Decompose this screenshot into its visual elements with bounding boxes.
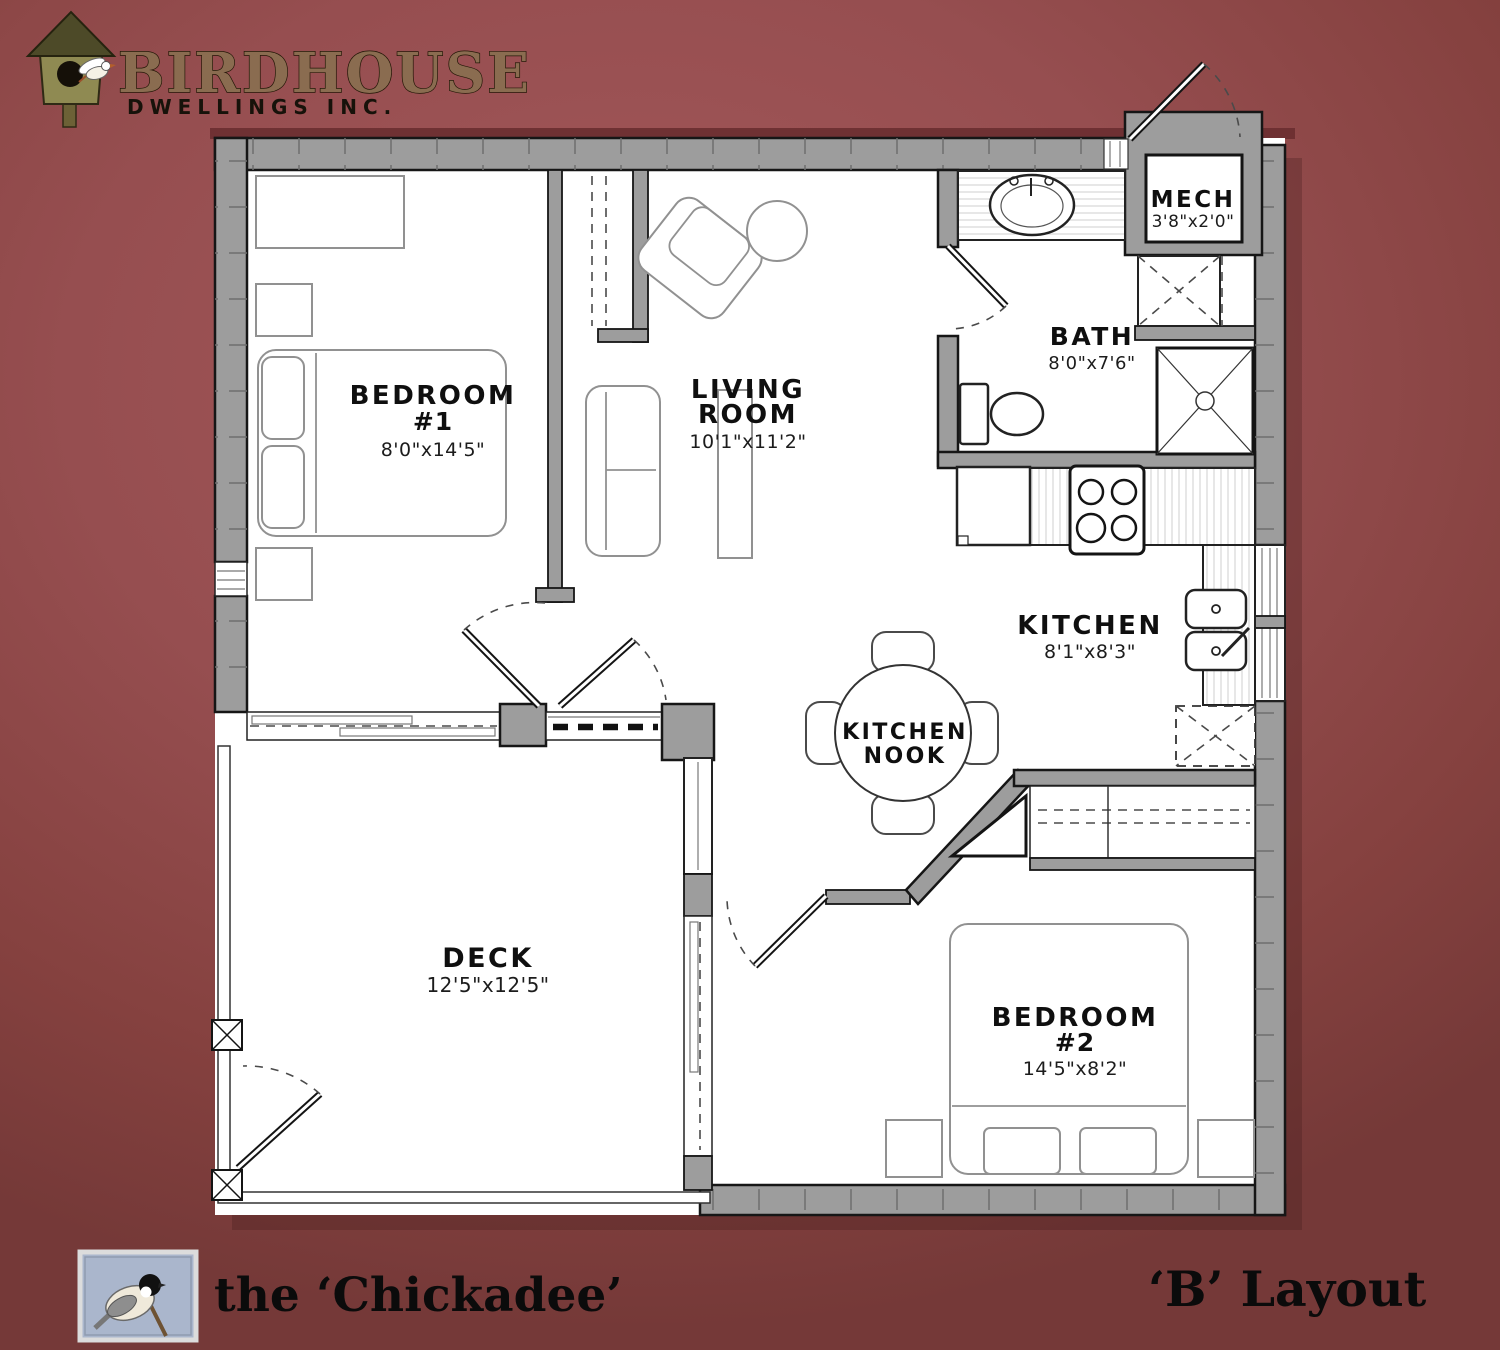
svg-text:BATH: BATH <box>1050 322 1134 351</box>
plan-name: the ‘Chickadee’ <box>214 1268 623 1323</box>
floor-plan-canvas: BIRDHOUSE DWELLINGS INC. <box>0 0 1500 1350</box>
deck-east-wall <box>684 758 712 1190</box>
svg-text:ROOM: ROOM <box>698 400 798 430</box>
svg-text:#1: #1 <box>413 407 453 436</box>
svg-text:KITCHEN: KITCHEN <box>842 720 968 745</box>
birdhouse-icon <box>28 12 116 127</box>
svg-text:NOOK: NOOK <box>864 744 947 769</box>
stove <box>1070 466 1144 554</box>
chest <box>256 548 312 600</box>
nightstand <box>256 284 312 336</box>
closet-bedroom2 <box>1030 786 1255 870</box>
svg-text:10'1"x11'2": 10'1"x11'2" <box>689 431 806 453</box>
label-living-room: LIVING ROOM 10'1"x11'2" <box>689 375 806 453</box>
svg-text:3'8"x2'0": 3'8"x2'0" <box>1152 212 1235 232</box>
washer-closet <box>1138 256 1222 326</box>
nightstand <box>1198 1120 1254 1177</box>
window-kitchen <box>1255 545 1285 701</box>
sofa <box>586 386 660 556</box>
mech-room <box>1104 112 1262 255</box>
footer: the ‘Chickadee’ ‘B’ Layout <box>80 1252 1427 1340</box>
label-mech: MECH 3'8"x2'0" <box>1151 187 1236 232</box>
floor-plan: BEDROOM #1 8'0"x14'5" LIVING ROOM 10'1"x… <box>210 64 1302 1230</box>
svg-text:KITCHEN: KITCHEN <box>1017 611 1162 641</box>
page-background: BIRDHOUSE DWELLINGS INC. <box>0 0 1500 1350</box>
window-left-wall <box>215 562 247 596</box>
vanity-sink <box>958 171 1125 240</box>
deck-post <box>212 1170 242 1200</box>
base-cabinet <box>1176 706 1255 766</box>
dresser <box>256 176 404 248</box>
logo: BIRDHOUSE DWELLINGS INC. <box>28 12 531 127</box>
side-table <box>747 201 807 261</box>
svg-text:14'5"x8'2": 14'5"x8'2" <box>1023 1058 1128 1080</box>
svg-text:#2: #2 <box>1055 1028 1095 1057</box>
label-bath: BATH 8'0"x7'6" <box>1048 322 1135 374</box>
fridge <box>957 467 1030 545</box>
svg-text:12'5"x12'5": 12'5"x12'5" <box>426 973 549 997</box>
svg-text:MECH: MECH <box>1151 187 1236 213</box>
svg-text:8'0"x14'5": 8'0"x14'5" <box>381 439 486 461</box>
brand-subtitle: DWELLINGS INC. <box>127 95 397 119</box>
nightstand <box>886 1120 942 1177</box>
deck-post <box>212 1020 242 1050</box>
svg-text:DECK: DECK <box>442 943 534 974</box>
layout-label: ‘B’ Layout <box>1148 1260 1427 1318</box>
svg-text:8'0"x7'6": 8'0"x7'6" <box>1048 353 1135 374</box>
svg-text:8'1"x8'3": 8'1"x8'3" <box>1044 641 1136 663</box>
label-deck: DECK 12'5"x12'5" <box>426 943 549 997</box>
chickadee-photo <box>80 1252 196 1340</box>
shower <box>1157 348 1253 454</box>
